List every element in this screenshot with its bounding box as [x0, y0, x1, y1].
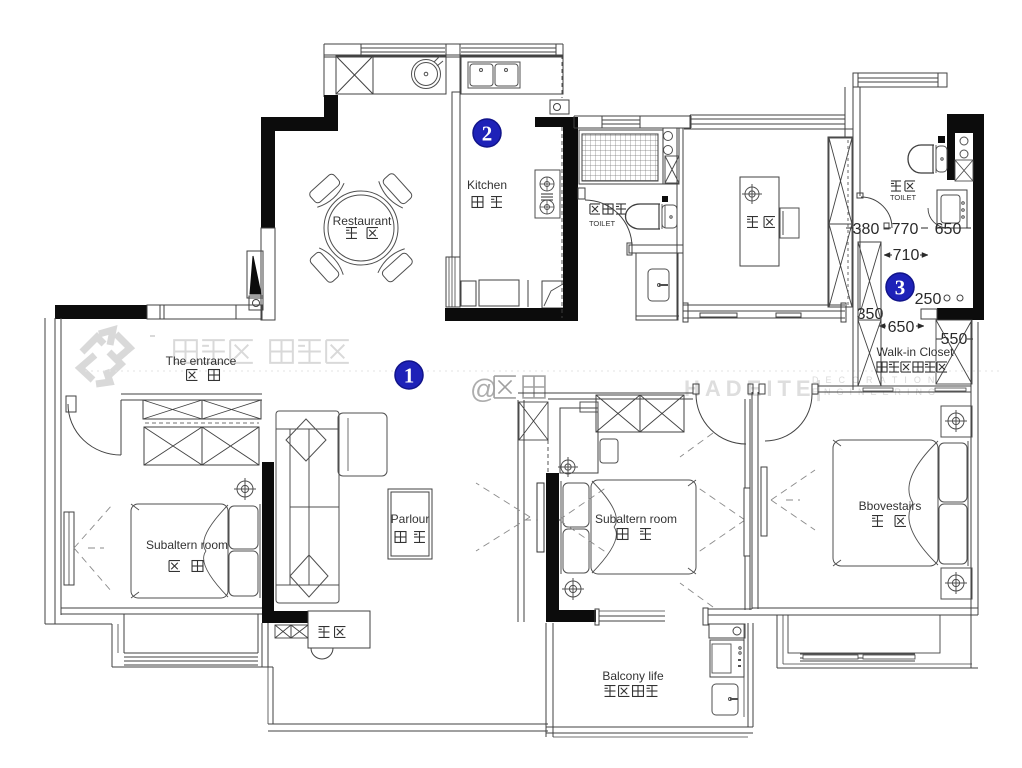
svg-text:Kitchen: Kitchen: [467, 178, 507, 192]
svg-text:DECORATION: DECORATION: [812, 375, 941, 385]
svg-text:HADEITE|: HADEITE|: [684, 376, 827, 401]
svg-text:Balcony life: Balcony life: [602, 669, 664, 683]
svg-text:650: 650: [935, 221, 962, 238]
svg-text:2: 2: [482, 122, 493, 146]
svg-text:3: 3: [895, 276, 906, 300]
svg-text:TOILET: TOILET: [890, 193, 917, 202]
svg-text:770: 770: [892, 221, 919, 238]
svg-text:Restaurant: Restaurant: [333, 214, 392, 228]
svg-text:710: 710: [893, 247, 920, 264]
svg-text:Walk-in Closet: Walk-in Closet: [877, 345, 955, 359]
svg-text:Subaltern room: Subaltern room: [595, 512, 677, 526]
svg-text:250: 250: [915, 291, 942, 308]
svg-text:Subaltern room: Subaltern room: [146, 538, 228, 552]
svg-text:380: 380: [853, 221, 880, 238]
svg-text:1: 1: [404, 364, 415, 388]
svg-text:Bbovestairs: Bbovestairs: [859, 499, 922, 513]
svg-text:650: 650: [888, 319, 915, 336]
svg-text:Parlour: Parlour: [391, 512, 430, 526]
svg-text:TOILET: TOILET: [589, 219, 616, 228]
svg-text:The entrance: The entrance: [166, 354, 237, 368]
